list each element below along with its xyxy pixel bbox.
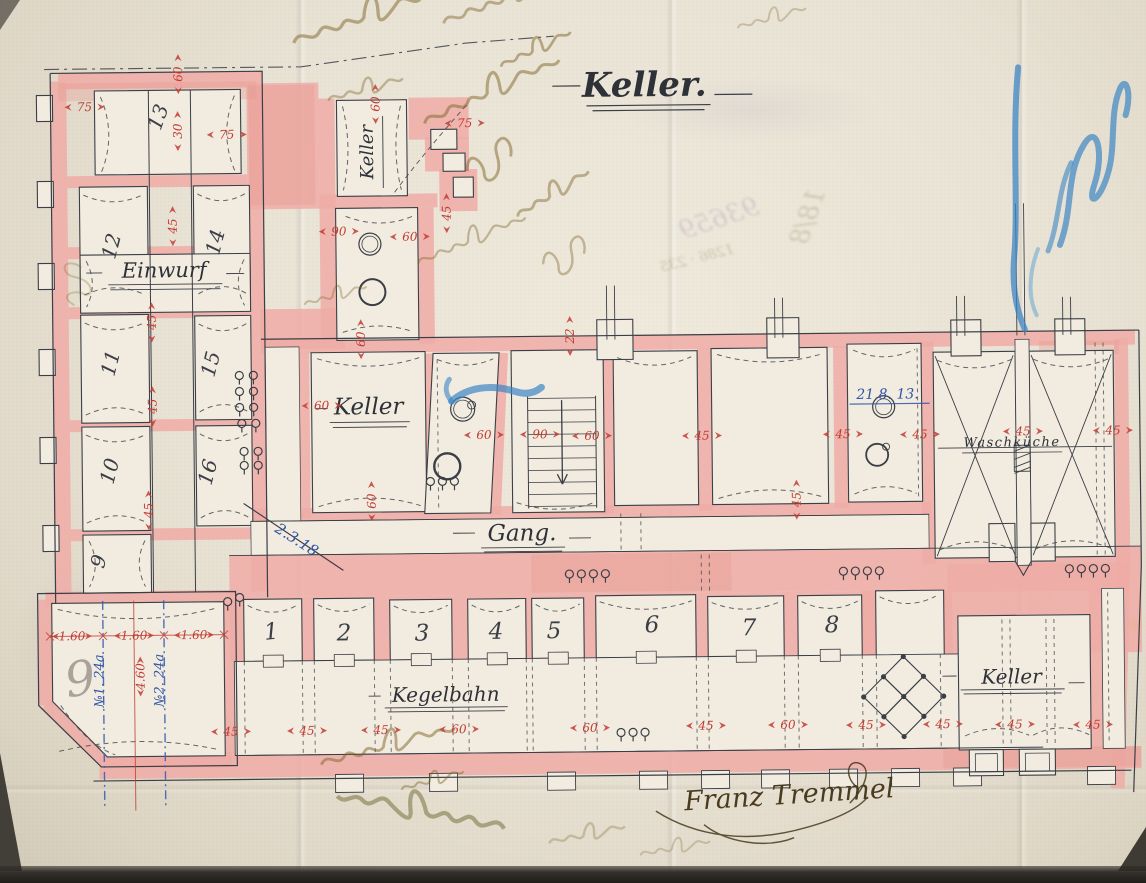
svg-text:60: 60 — [584, 429, 600, 443]
svg-text:1.60: 1.60 — [181, 628, 208, 642]
svg-text:45: 45 — [146, 399, 160, 415]
br-door-step — [1025, 753, 1049, 771]
blue-underline — [850, 403, 930, 404]
buttress — [639, 771, 667, 789]
svg-text:45: 45 — [834, 427, 850, 441]
cell-door — [263, 655, 283, 667]
svg-text:30: 30 — [171, 123, 185, 139]
label-kegelbahn: Kegelbahn — [391, 682, 500, 707]
svg-text:45: 45 — [298, 724, 314, 738]
svg-text:45: 45 — [142, 503, 156, 519]
svg-text:60: 60 — [476, 428, 492, 442]
svg-text:45: 45 — [1014, 424, 1030, 438]
svg-text:60: 60 — [171, 66, 185, 82]
scanned-floor-plan-photo: 936591286 · 23518/8 — [0, 0, 1146, 883]
svg-text:75: 75 — [457, 116, 472, 130]
svg-text:45: 45 — [440, 206, 454, 222]
wall-niche — [43, 525, 59, 551]
svg-text:90: 90 — [331, 224, 347, 238]
cell-door — [334, 654, 354, 666]
label-keller-bottom-right: Keller — [980, 664, 1043, 689]
cell-door — [820, 649, 840, 661]
boiler-box — [989, 523, 1015, 561]
boundary-dash-dot-line — [44, 36, 554, 69]
ghost-stamp-text: 93659 — [675, 191, 763, 246]
plan-title: Keller. — [581, 65, 707, 106]
svg-text:60: 60 — [451, 722, 467, 736]
floor-plan-drawing: 936591286 · 23518/8 — [0, 0, 1146, 883]
svg-text:45: 45 — [372, 723, 388, 737]
label-keller-annex: Keller — [357, 123, 379, 180]
cell-door — [548, 652, 568, 664]
svg-text:75: 75 — [77, 100, 92, 114]
room-keller-mid — [311, 352, 427, 513]
chimney-step — [453, 177, 473, 197]
svg-text:45: 45 — [790, 492, 804, 508]
ghost-stamp-text: 18/8 — [784, 184, 832, 249]
cell-door — [487, 653, 507, 665]
label-einwurf: Einwurf — [121, 258, 210, 283]
svg-text:45: 45 — [857, 718, 873, 732]
svg-text:45: 45 — [693, 429, 709, 443]
svg-text:4.60: 4.60 — [133, 663, 147, 691]
room-blue-note — [847, 343, 923, 502]
room-number: 2 — [336, 620, 352, 646]
room-number: 7 — [742, 615, 757, 641]
buttress — [891, 768, 919, 786]
kegelbahn-hall — [234, 653, 1041, 755]
cell-door — [736, 650, 756, 662]
svg-text:60: 60 — [780, 718, 796, 732]
label-gang: Gang. — [487, 520, 556, 547]
svg-text:60: 60 — [402, 230, 418, 244]
svg-text:45: 45 — [222, 725, 238, 739]
svg-text:45: 45 — [1006, 717, 1022, 731]
svg-text:1.60: 1.60 — [59, 629, 86, 643]
svg-text:90: 90 — [532, 427, 548, 441]
dimension-label: 45 — [166, 206, 180, 246]
room-number: 5 — [547, 618, 562, 644]
svg-text:60: 60 — [368, 96, 382, 112]
room-number: 4 — [488, 619, 504, 645]
label-keller-mid: Keller — [333, 394, 406, 421]
right-strip — [1102, 588, 1126, 748]
svg-text:45: 45 — [934, 717, 950, 731]
cell-door — [636, 651, 656, 663]
ghost-stamp-text: 1286 · 235 — [658, 242, 735, 277]
br-door-step — [975, 754, 997, 772]
svg-text:45: 45 — [911, 427, 927, 441]
annex-shaft-room — [336, 208, 419, 341]
svg-text:60: 60 — [354, 331, 368, 347]
photo-edge-bottom — [0, 866, 1146, 883]
mirrored-bleed-script — [336, 788, 505, 829]
room-number: 6 — [644, 612, 659, 638]
chimney-step — [443, 153, 465, 171]
blue-date-right: 21.8. 13. — [855, 386, 919, 403]
buttress — [335, 774, 363, 792]
room-number: 8 — [824, 612, 839, 638]
room-45 — [711, 347, 829, 504]
chimney-stack — [1055, 319, 1085, 355]
svg-text:60: 60 — [314, 399, 330, 413]
room-number: 1 — [263, 619, 280, 646]
chimney-step — [431, 129, 457, 149]
bleed-through-marks: 936591286 · 23518/8 — [658, 184, 833, 276]
svg-text:45: 45 — [1084, 717, 1100, 731]
svg-text:45: 45 — [1104, 423, 1120, 437]
rooms — [36, 80, 1125, 795]
svg-text:60: 60 — [365, 493, 379, 509]
buttress — [1087, 766, 1115, 784]
svg-text:60: 60 — [582, 721, 598, 735]
room-number: 3 — [415, 621, 430, 647]
label-waschkueche: Waschküche — [964, 435, 1061, 451]
room-60 — [613, 351, 699, 506]
svg-text:75: 75 — [219, 128, 234, 142]
chimney-stack — [951, 320, 981, 356]
cell-door — [411, 653, 431, 665]
svg-text:45: 45 — [697, 719, 713, 733]
buttress — [547, 772, 575, 790]
blue-mark-no2: №2. 24a — [152, 654, 168, 708]
svg-text:22: 22 — [563, 328, 577, 344]
svg-text:45: 45 — [166, 218, 180, 234]
svg-text:45: 45 — [145, 315, 159, 331]
svg-text:1.60: 1.60 — [121, 628, 148, 642]
